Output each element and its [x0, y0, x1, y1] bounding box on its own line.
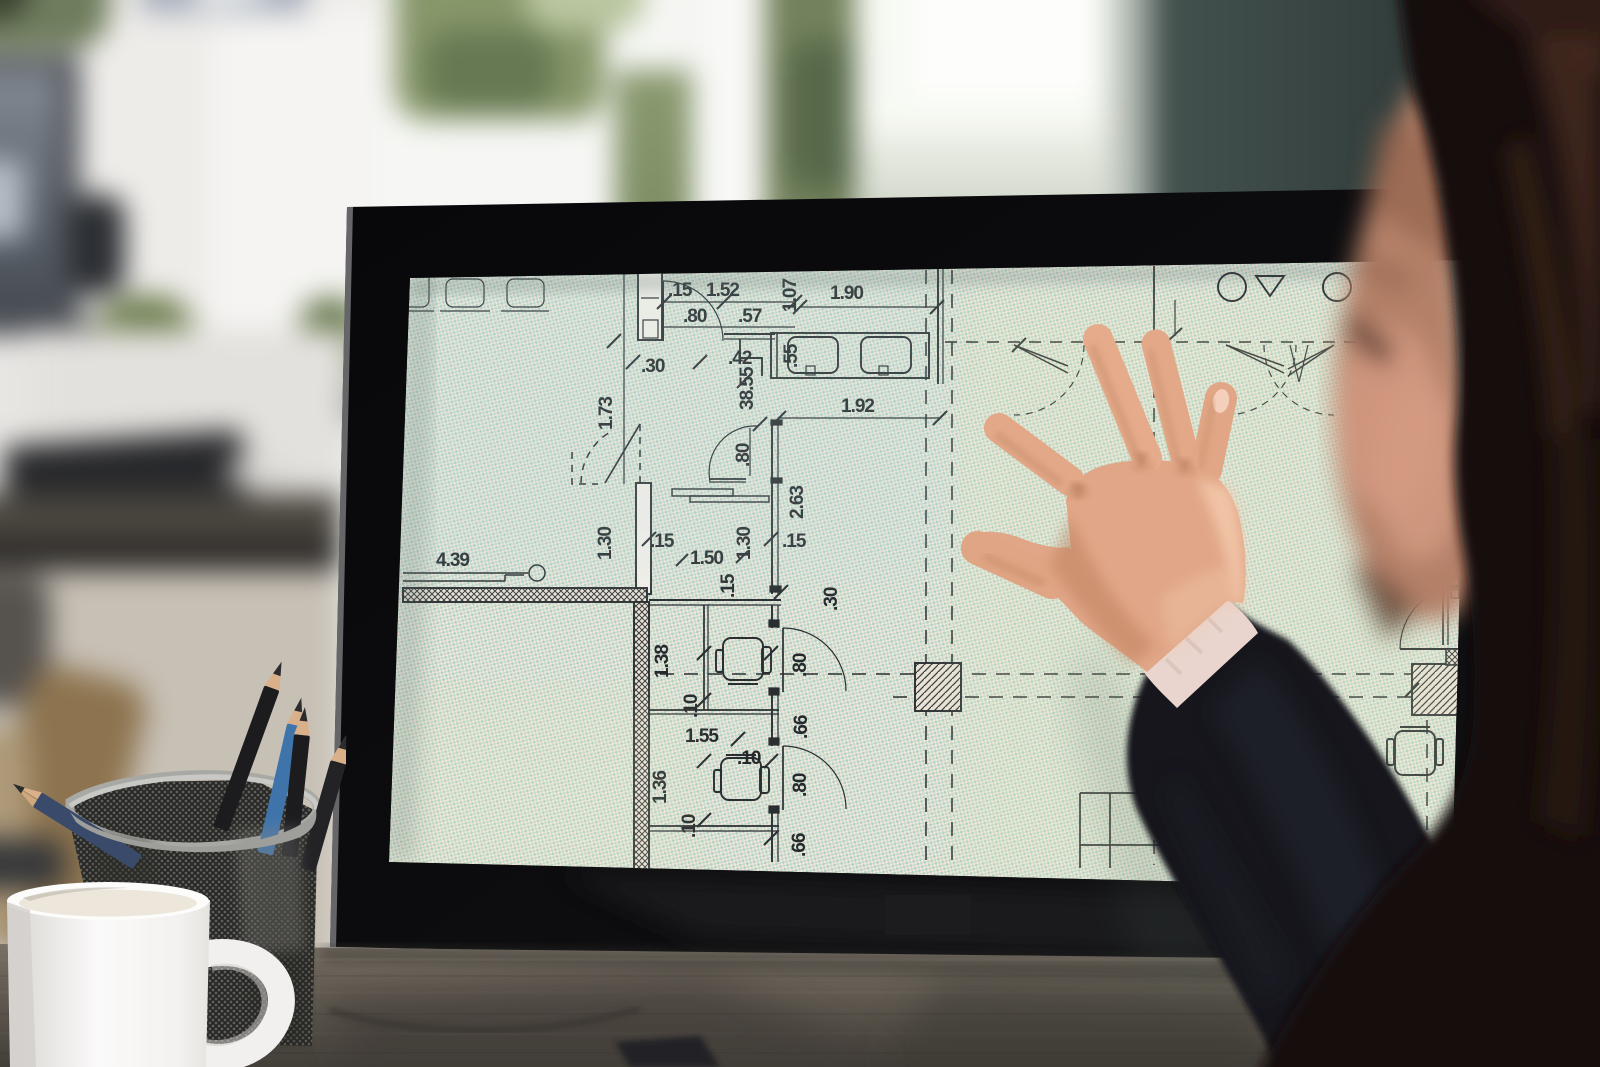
svg-text:.30: .30: [821, 587, 842, 611]
svg-text:.80: .80: [790, 773, 811, 797]
svg-text:.10: .10: [737, 748, 761, 769]
svg-text:1.38: 1.38: [652, 645, 673, 678]
svg-text:.66: .66: [791, 715, 812, 739]
svg-text:.66: .66: [789, 833, 810, 857]
svg-text:.80: .80: [790, 653, 811, 677]
svg-text:1.55: 1.55: [685, 726, 719, 747]
